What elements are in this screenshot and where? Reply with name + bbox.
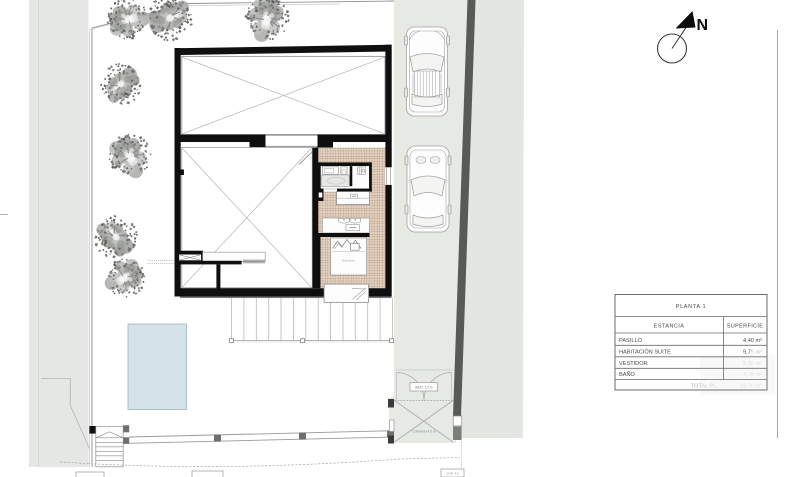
svg-text:Dormitorio: Dormitorio <box>342 259 355 263</box>
svg-text:N: N <box>697 17 709 34</box>
svg-text:4,40 m²: 4,40 m² <box>743 338 762 344</box>
svg-text:COR. 4,5: COR. 4,5 <box>446 472 459 476</box>
svg-text:ESTANCIA: ESTANCIA <box>654 324 685 330</box>
svg-text:HABITACIÓN SUITE: HABITACIÓN SUITE <box>619 348 671 355</box>
svg-text:Corredera 4,5 m: Corredera 4,5 m <box>412 430 436 434</box>
svg-text:9,75 m²: 9,75 m² <box>743 349 762 355</box>
svg-text:VESTIDOR: VESTIDOR <box>619 361 648 367</box>
svg-text:BAÑO: BAÑO <box>619 371 636 378</box>
svg-text:PLANTA 1: PLANTA 1 <box>676 304 707 310</box>
svg-text:ABAT. 2,5 m: ABAT. 2,5 m <box>415 385 433 389</box>
svg-text:SUPERFICIE: SUPERFICIE <box>727 324 764 330</box>
svg-text:PASILLO: PASILLO <box>619 338 643 344</box>
